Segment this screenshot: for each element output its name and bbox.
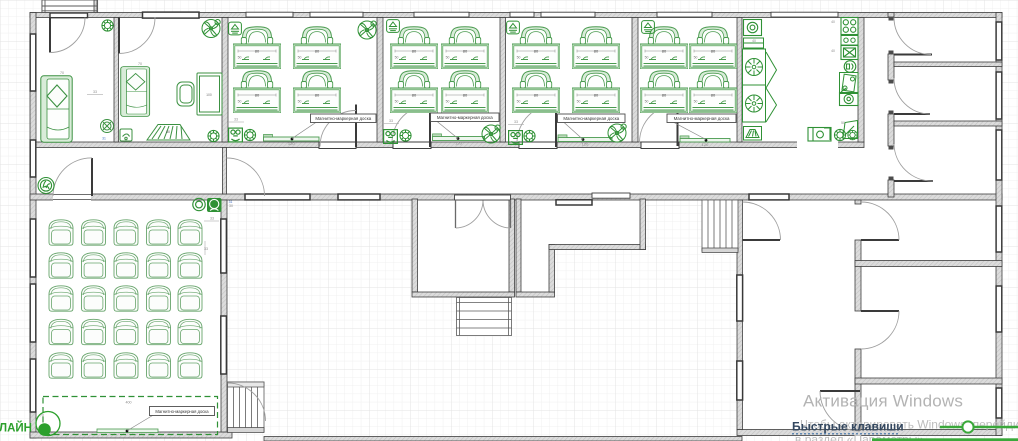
svg-text:31: 31 bbox=[229, 200, 233, 204]
svg-text:400: 400 bbox=[126, 401, 132, 405]
svg-text:120: 120 bbox=[582, 142, 589, 147]
svg-text:Магнитно-маркерная доска: Магнитно-маркерная доска bbox=[155, 409, 209, 414]
svg-text:40: 40 bbox=[831, 20, 835, 24]
svg-text:40: 40 bbox=[752, 39, 756, 43]
svg-text:Быстрые клавиши: Быстрые клавиши bbox=[792, 420, 904, 434]
svg-text:70: 70 bbox=[138, 62, 142, 66]
svg-text:Магнитно-маркерная доска: Магнитно-маркерная доска bbox=[674, 116, 730, 121]
svg-text:30: 30 bbox=[229, 204, 233, 208]
svg-text:120: 120 bbox=[455, 141, 462, 146]
svg-text:33: 33 bbox=[204, 247, 208, 251]
svg-text:33: 33 bbox=[514, 120, 518, 124]
svg-text:33: 33 bbox=[210, 216, 214, 220]
svg-text:70: 70 bbox=[60, 71, 64, 75]
svg-text:Магнитно-маркерная доска: Магнитно-маркерная доска bbox=[315, 116, 371, 121]
svg-text:120: 120 bbox=[288, 141, 295, 146]
svg-text:Магнитно-маркерная доска: Магнитно-маркерная доска bbox=[437, 115, 493, 120]
svg-text:120: 120 bbox=[702, 142, 709, 147]
svg-text:100: 100 bbox=[206, 93, 212, 97]
svg-text:50: 50 bbox=[841, 121, 845, 125]
svg-text:80: 80 bbox=[166, 130, 170, 134]
svg-text:33: 33 bbox=[234, 118, 238, 122]
svg-text:33: 33 bbox=[389, 119, 393, 123]
svg-text:Магнитно-маркерная доска: Магнитно-маркерная доска bbox=[563, 116, 619, 121]
svg-text:40: 40 bbox=[831, 49, 835, 53]
svg-text:33: 33 bbox=[93, 90, 97, 94]
svg-text:31: 31 bbox=[102, 137, 106, 141]
svg-text:70: 70 bbox=[40, 414, 44, 418]
svg-text:ЛАЙН: ЛАЙН bbox=[0, 422, 32, 435]
svg-text:Активация Windows: Активация Windows bbox=[803, 392, 963, 411]
